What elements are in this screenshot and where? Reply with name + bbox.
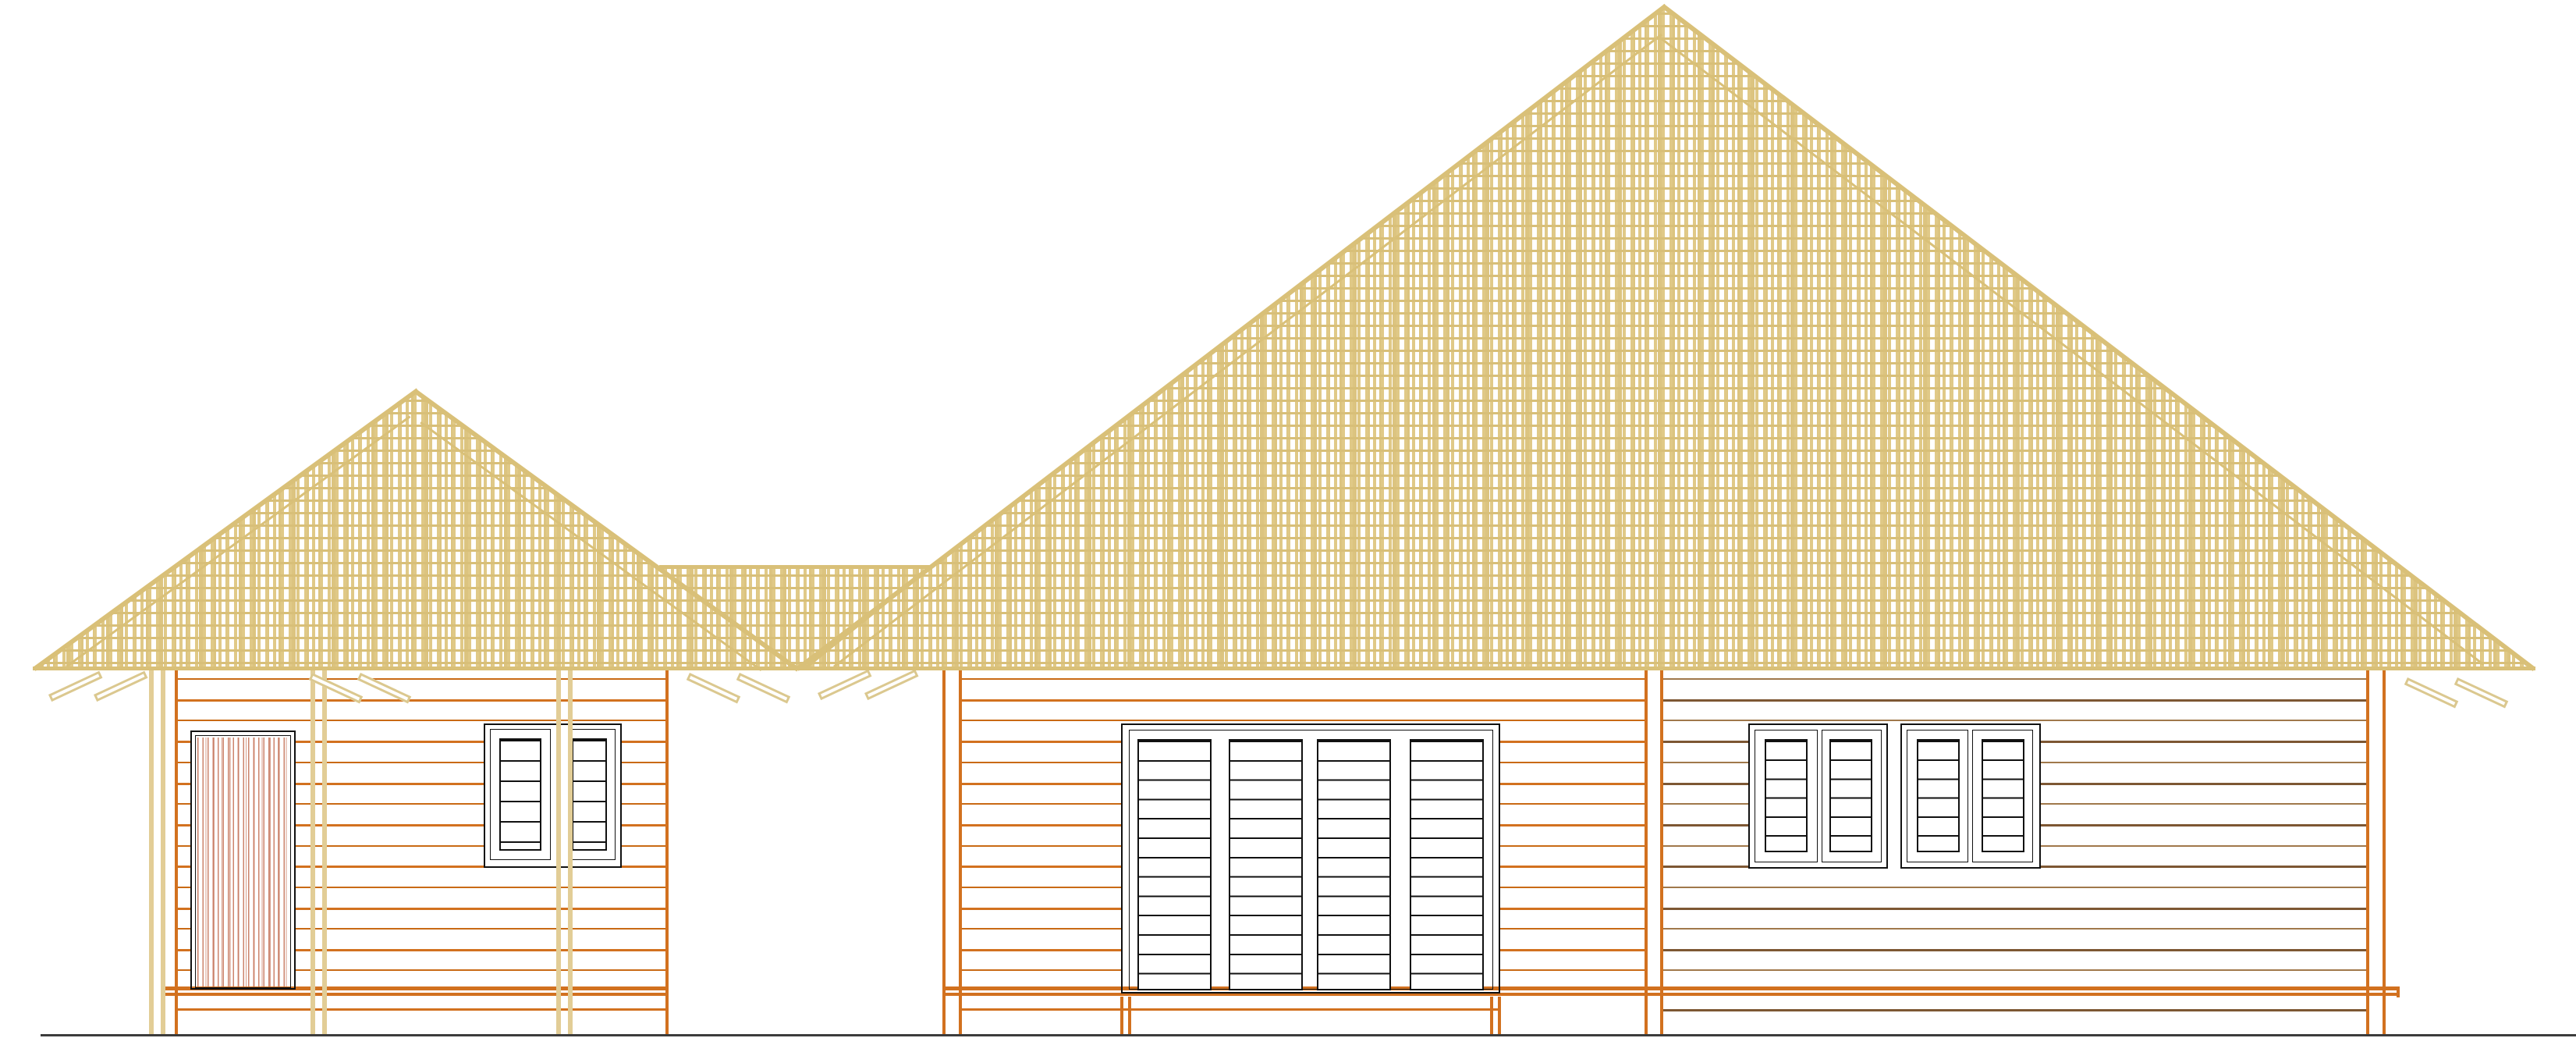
center-wall-clapboard-line [1500,824,1645,826]
bench-leg [1120,997,1123,1036]
corner-post-orange [942,668,946,1036]
corner-post-orange [175,668,178,1036]
right-wall-clapboard-line [1660,783,1748,785]
right-wall-lower-line [1660,1009,2366,1011]
center-louvered-window-louver-panel [1229,739,1303,990]
center-wall-clapboard-line [959,928,1121,930]
right-wall-clapboard-line [1660,949,2366,951]
rafter-tail [736,673,790,703]
center-wall-clapboard-line [1500,783,1645,785]
right-wall-clapboard-line [2041,824,2366,826]
center-wall-clapboard-line [1500,866,1645,868]
right-louvered-window-right-half-louver-panel [1917,739,1960,852]
right-louvered-window-left-half-louver-panel [1829,739,1872,852]
right-louvered-window-right-half-louver-panel [1982,739,2024,852]
annex-wall-clapboard-line [622,866,665,868]
right-wall-clapboard-line [1660,678,2366,680]
center-wall-clapboard-line [959,866,1121,868]
center-wall-clapboard-line [1500,969,1645,971]
annex-wall-clapboard-line [296,928,665,930]
right-wall-clapboard-line [2041,803,2366,805]
right-wall-clapboard-line [1660,803,1748,805]
center-wall-clapboard-line [959,699,1645,702]
bench-leg [1498,997,1501,1036]
center-wall-clapboard-line [1500,887,1645,888]
right-wall-clapboard-line [2041,741,2366,743]
center-louvered-window-louver-panel [1410,739,1484,990]
link-roof-ridge [659,565,930,569]
bench-leg [1128,997,1131,1036]
center-wall-clapboard-line [1500,803,1645,805]
center-louvered-window-louver-panel [1137,739,1212,990]
right-wall-clapboard-line [1660,699,2366,702]
timber-post-tan [149,668,154,1036]
center-wall-clapboard-line [959,762,1121,763]
bench-leg [1490,997,1493,1036]
right-wall-clapboard-line [2041,866,2366,868]
center-louvered-window-louver-panel [1317,739,1391,990]
main-bench-lower-rail [959,1008,1500,1011]
annex-wall-clapboard-line [622,741,665,743]
annex-bench-top-rail-2 [164,993,665,996]
main-bench-rail-end-cap [2397,986,2400,997]
corner-post-orange [959,668,962,1036]
rafter-tail [818,670,871,700]
right-wall-clapboard-line [1660,845,1748,847]
center-wall-clapboard-line [959,887,1121,888]
timber-post-tan [161,668,165,1036]
rafter-tail [687,673,740,703]
corner-post-orange [2383,668,2386,1036]
center-wall-clapboard-line [1500,741,1645,743]
center-wall-clapboard-line [1500,928,1645,930]
annex-louvered-window-louver-panel [572,738,607,851]
annex-wall-clapboard-line [622,783,665,785]
timber-post-tan [310,668,315,1036]
right-louvered-window-left-half-louver-panel [1765,739,1808,852]
elevation-drawing [0,0,2576,1038]
rafter-tail [864,670,918,700]
right-wall-clapboard-line [1660,928,2366,930]
center-wall-clapboard-line [1500,762,1645,763]
annex-wall-clapboard-line [622,845,665,847]
annex-wall-clapboard-line [622,824,665,826]
center-wall-clapboard-line [959,678,1645,680]
right-wall-clapboard-line [1660,824,1748,826]
center-wall-clapboard-line [959,720,1645,721]
annex-wall-clapboard-line [296,969,665,971]
center-wall-clapboard-line [959,741,1121,743]
corner-post-orange [2366,668,2369,1036]
rafter-tail [2404,677,2458,708]
center-wall-clapboard-line [959,803,1121,805]
center-wall-clapboard-line [1500,908,1645,910]
center-wall-clapboard-line [959,824,1121,826]
eave-line [33,667,2535,670]
annex-wall-clapboard-line [622,762,665,763]
corner-post-orange [665,668,669,1036]
center-wall-clapboard-line [959,908,1121,910]
annex-wall-clapboard-line [296,949,665,951]
center-wall-clapboard-line [1500,845,1645,847]
right-wall-clapboard-line [1660,866,1748,868]
timber-post-tan [322,668,327,1036]
rafter-tail [2454,677,2508,708]
right-wall-clapboard-line [1660,969,2366,971]
annex-wall-clapboard-line [296,887,665,888]
annex-wall-clapboard-line [175,678,665,680]
right-wall-clapboard-line [2041,762,2366,763]
center-wall-clapboard-line [1500,949,1645,951]
right-wall-clapboard-line [1660,908,2366,910]
right-wall-clapboard-line [1660,720,2366,721]
center-wall-clapboard-line [959,949,1121,951]
corner-post-orange [1645,668,1648,1036]
timber-post-tan [568,668,573,1036]
right-wall-clapboard-line [1660,887,2366,888]
timber-post-tan [556,668,561,1036]
center-wall-clapboard-line [959,783,1121,785]
annex-wall-clapboard-line [175,699,665,702]
right-wall-clapboard-line [1660,741,1748,743]
right-wall-clapboard-line [1660,762,1748,763]
center-wall-clapboard-line [959,969,1121,971]
annex-louvered-window-louver-panel [499,738,541,851]
right-wall-clapboard-line [2041,783,2366,785]
corner-post-orange [1660,668,1663,1036]
annex-bench-lower-rail [175,1008,665,1011]
annex-wall-clapboard-line [296,908,665,910]
entry-door-wood-grain [197,738,289,986]
center-wall-clapboard-line [959,845,1121,847]
annex-wall-clapboard-line [622,803,665,805]
annex-wall-clapboard-line [175,720,665,721]
ground-line [41,1034,2576,1036]
right-wall-clapboard-line [2041,845,2366,847]
